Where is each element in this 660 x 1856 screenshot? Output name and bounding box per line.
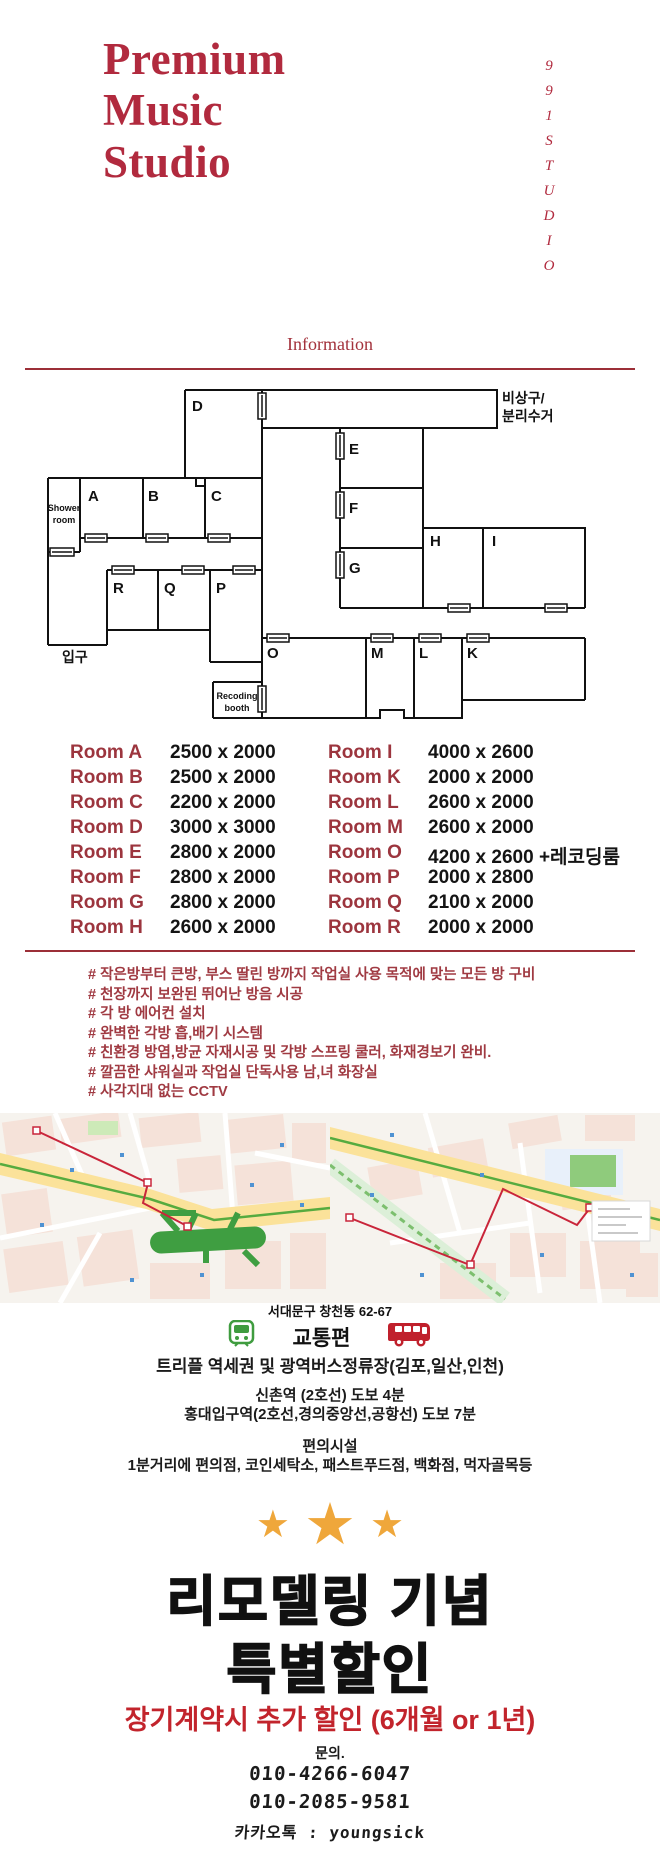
map-right-image bbox=[330, 1113, 660, 1303]
feature-item: # 깔끔한 샤워실과 작업실 단독사용 남,녀 화장실 bbox=[88, 1064, 535, 1084]
table-size: 4000 x 2600 bbox=[428, 742, 638, 767]
table-size: 4200 x 2600 +레코딩룸 bbox=[428, 842, 638, 867]
contact-kakao: 카카오톡 : youngsick bbox=[0, 1819, 660, 1843]
table-room: Room A bbox=[70, 742, 170, 767]
feature-item: # 천장까지 보완된 뛰어난 방음 시공 bbox=[88, 986, 535, 1006]
promo-discount-line: 장기계약시 추가 할인 (6개월 or 1년) bbox=[0, 1698, 660, 1737]
room-label-o: O bbox=[267, 645, 279, 662]
feature-item: # 작은방부터 큰방, 부스 딸린 방까지 작업실 사용 목적에 맞는 모든 방… bbox=[88, 966, 535, 986]
table-room: Room O bbox=[328, 842, 428, 867]
divider-top bbox=[25, 368, 635, 370]
floorplan-diagram: D E F G A B C H I R Q P O M L K Shower r… bbox=[0, 385, 660, 730]
table-size: 2600 x 2000 bbox=[428, 817, 638, 842]
table-room: Room E bbox=[70, 842, 170, 867]
table-size: 2500 x 2000 bbox=[170, 767, 328, 792]
table-size: 2600 x 2000 bbox=[428, 792, 638, 817]
room-label-f: F bbox=[349, 500, 358, 517]
contact-label: 문의. bbox=[0, 1743, 660, 1763]
title-line-1: Premium bbox=[103, 34, 286, 85]
divider-middle bbox=[25, 950, 635, 952]
star-icon: ★ bbox=[370, 1506, 404, 1544]
room-label-k: K bbox=[467, 645, 478, 662]
studio-vertical-label: 991STUDIO bbox=[540, 58, 557, 308]
room-size-table: Room A 2500 x 2000 Room I 4000 x 2600 Ro… bbox=[70, 742, 638, 942]
map-info-box bbox=[592, 1201, 650, 1241]
room-label-q: Q bbox=[164, 580, 176, 597]
recording-booth-label-2: booth bbox=[225, 703, 250, 713]
table-size: 2800 x 2000 bbox=[170, 892, 328, 917]
title-line-2: Music bbox=[103, 85, 286, 136]
flyer-page: Premium Music Studio 991STUDIO Informati… bbox=[0, 0, 660, 1856]
table-room: Room G bbox=[70, 892, 170, 917]
transport-line-2: 신촌역 (2호선) 도보 4분 bbox=[0, 1384, 660, 1405]
bus-icon bbox=[388, 1320, 432, 1353]
floorplan-labels: D E F G A B C H I R Q P O M L K Shower r… bbox=[48, 390, 554, 713]
feature-item: # 완벽한 각방 흡,배기 시스템 bbox=[88, 1025, 535, 1045]
table-room: Room C bbox=[70, 792, 170, 817]
feature-item: # 사각지대 없는 CCTV bbox=[88, 1083, 535, 1103]
facilities-heading: 편의시설 bbox=[0, 1435, 660, 1456]
shower-room-label-2: room bbox=[53, 515, 76, 525]
table-room: Room F bbox=[70, 867, 170, 892]
contact-phone-1: 010-4266-6047 bbox=[0, 1763, 660, 1785]
table-room: Room R bbox=[328, 917, 428, 942]
entrance-label: 입구 bbox=[62, 649, 88, 665]
transport-header-row: 교통편 bbox=[0, 1320, 660, 1353]
table-size: 2100 x 2000 bbox=[428, 892, 638, 917]
table-room: Room H bbox=[70, 917, 170, 942]
transport-line-1: 트리플 역세권 및 광역버스정류장(김포,일산,인천) bbox=[0, 1352, 660, 1377]
star-icon: ★ bbox=[256, 1506, 290, 1544]
emergency-exit-label-1: 비상구/ bbox=[502, 390, 545, 406]
information-heading: Information bbox=[0, 334, 660, 355]
recording-booth-label-1: Recoding bbox=[216, 691, 257, 701]
table-room: Room I bbox=[328, 742, 428, 767]
room-label-g: G bbox=[349, 560, 361, 577]
star-icon: ★ bbox=[304, 1496, 356, 1554]
room-label-e: E bbox=[349, 441, 359, 458]
room-label-i: I bbox=[492, 533, 496, 550]
emergency-exit-label-2: 분리수거 bbox=[502, 408, 554, 424]
feature-item: # 친환경 방염,방균 자재시공 및 각방 스프링 쿨러, 화재경보기 완비. bbox=[88, 1044, 535, 1064]
table-room: Room Q bbox=[328, 892, 428, 917]
map-left-image bbox=[0, 1113, 330, 1303]
room-label-d: D bbox=[192, 398, 203, 415]
feature-list: # 작은방부터 큰방, 부스 딸린 방까지 작업실 사용 목적에 맞는 모든 방… bbox=[88, 966, 535, 1103]
table-size: 2800 x 2000 bbox=[170, 842, 328, 867]
table-size: 2000 x 2800 bbox=[428, 867, 638, 892]
table-room: Room D bbox=[70, 817, 170, 842]
table-size: 2200 x 2000 bbox=[170, 792, 328, 817]
subway-icon bbox=[228, 1320, 255, 1353]
floorplan-walls bbox=[48, 390, 585, 718]
door-symbols bbox=[50, 393, 567, 712]
table-size: 2600 x 2000 bbox=[170, 917, 328, 942]
table-room: Room P bbox=[328, 867, 428, 892]
transport-heading: 교통편 bbox=[293, 1322, 351, 1352]
title-line-3: Studio bbox=[103, 137, 286, 188]
room-label-c: C bbox=[211, 488, 222, 505]
shower-room-label-1: Shower bbox=[48, 503, 81, 513]
transport-line-3: 홍대입구역(2호선,경의중앙선,공항선) 도보 7분 bbox=[0, 1403, 660, 1424]
room-label-m: M bbox=[371, 645, 384, 662]
star-decoration: ★ ★ ★ bbox=[0, 1492, 660, 1550]
table-room: Room K bbox=[328, 767, 428, 792]
table-size: 2800 x 2000 bbox=[170, 867, 328, 892]
map-right bbox=[330, 1113, 660, 1303]
feature-item: # 각 방 에어컨 설치 bbox=[88, 1005, 535, 1025]
room-label-r: R bbox=[113, 580, 124, 597]
table-room: Room B bbox=[70, 767, 170, 792]
address-line: 서대문구 창천동 62-67 bbox=[0, 1301, 660, 1320]
room-label-b: B bbox=[148, 488, 159, 505]
table-size: 2000 x 2000 bbox=[428, 917, 638, 942]
room-label-p: P bbox=[216, 580, 226, 597]
facilities-line: 1분거리에 편의점, 코인세탁소, 패스트푸드점, 백화점, 먹자골목등 bbox=[0, 1454, 660, 1475]
room-label-l: L bbox=[419, 645, 428, 662]
room-label-h: H bbox=[430, 533, 441, 550]
promo-title-line-2: 특별할인 bbox=[0, 1625, 660, 1704]
table-size: 2500 x 2000 bbox=[170, 742, 328, 767]
room-label-a: A bbox=[88, 488, 99, 505]
table-size: 3000 x 3000 bbox=[170, 817, 328, 842]
contact-phone-2: 010-2085-9581 bbox=[0, 1791, 660, 1813]
table-size: 2000 x 2000 bbox=[428, 767, 638, 792]
table-room: Room M bbox=[328, 817, 428, 842]
table-room: Room L bbox=[328, 792, 428, 817]
map-left bbox=[0, 1113, 330, 1303]
page-title: Premium Music Studio bbox=[103, 34, 286, 188]
map-park-patch bbox=[88, 1121, 118, 1135]
